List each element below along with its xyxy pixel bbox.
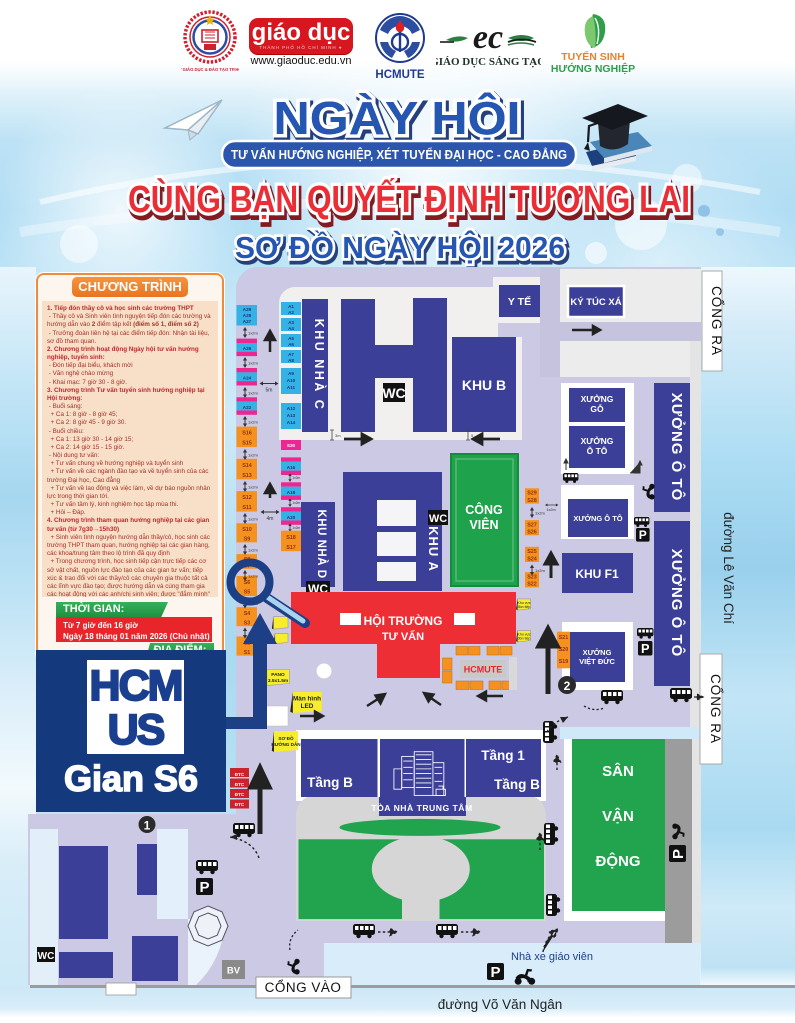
svg-text:PANO: PANO bbox=[271, 672, 285, 678]
svg-text:Tầng B: Tầng B bbox=[494, 777, 540, 792]
svg-text:LED: LED bbox=[301, 703, 314, 710]
svg-text:S1: S1 bbox=[244, 650, 251, 656]
svg-text:S16: S16 bbox=[242, 431, 252, 437]
svg-text:S17: S17 bbox=[286, 545, 296, 551]
svg-text:TƯ VẤN: TƯ VẤN bbox=[382, 630, 424, 643]
svg-text:A10: A10 bbox=[287, 378, 296, 383]
svg-text:S4: S4 bbox=[244, 611, 251, 617]
svg-text:S15: S15 bbox=[242, 441, 252, 447]
svg-text:A8: A8 bbox=[288, 358, 294, 363]
svg-text:WC: WC bbox=[38, 951, 55, 962]
svg-text:3.5x1.5m: 3.5x1.5m bbox=[268, 678, 288, 684]
svg-text:A27: A27 bbox=[243, 319, 252, 324]
svg-text:1: 1 bbox=[144, 819, 151, 833]
svg-text:1x2m: 1x2m bbox=[546, 508, 555, 512]
svg-text:KHU NHÀ D: KHU NHÀ D bbox=[315, 509, 328, 578]
svg-text:S21: S21 bbox=[559, 635, 569, 641]
svg-text:A26: A26 bbox=[243, 346, 252, 351]
svg-text:A14: A14 bbox=[287, 420, 296, 425]
svg-text:P: P bbox=[670, 849, 687, 859]
svg-text:A1: A1 bbox=[288, 304, 294, 309]
svg-text:A28: A28 bbox=[243, 313, 252, 318]
svg-text:A18: A18 bbox=[287, 490, 296, 495]
svg-text:S28: S28 bbox=[527, 498, 537, 504]
svg-text:XƯỞNG: XƯỞNG bbox=[583, 648, 612, 657]
svg-text:Tầng 1: Tầng 1 bbox=[481, 748, 525, 763]
svg-text:HƯỚNG DẪN: HƯỚNG DẪN bbox=[271, 740, 301, 747]
svg-text:CỔNG RA: CỔNG RA bbox=[709, 286, 724, 356]
svg-text:A6: A6 bbox=[288, 342, 294, 347]
svg-text:SÂN: SÂN bbox=[602, 762, 634, 780]
svg-text:S26: S26 bbox=[527, 530, 537, 536]
svg-text:KÝ TÚC XÁ: KÝ TÚC XÁ bbox=[570, 296, 621, 308]
svg-text:A16: A16 bbox=[287, 465, 296, 470]
svg-text:S22: S22 bbox=[527, 582, 537, 588]
svg-text:KHU A: KHU A bbox=[426, 526, 441, 572]
svg-text:WC: WC bbox=[382, 385, 405, 401]
svg-text:SƠ ĐỒ: SƠ ĐỒ bbox=[278, 735, 294, 741]
svg-text:Nhà xe giáo viên: Nhà xe giáo viên bbox=[511, 951, 593, 963]
svg-text:S14: S14 bbox=[242, 463, 252, 469]
svg-text:XƯỞNG Ô TÔ: XƯỞNG Ô TÔ bbox=[668, 549, 686, 658]
svg-text:Màn hình: Màn hình bbox=[293, 696, 321, 703]
svg-text:Tầng B: Tầng B bbox=[307, 775, 353, 790]
svg-text:A24: A24 bbox=[243, 376, 252, 381]
svg-text:4m: 4m bbox=[267, 516, 274, 522]
svg-text:BV: BV bbox=[227, 966, 241, 977]
svg-text:A11: A11 bbox=[287, 385, 296, 390]
svg-text:S18: S18 bbox=[286, 535, 296, 541]
svg-text:đường Võ Văn Ngân: đường Võ Văn Ngân bbox=[438, 997, 562, 1012]
svg-text:A22: A22 bbox=[243, 405, 252, 410]
svg-text:S19: S19 bbox=[559, 659, 569, 665]
svg-text:A7: A7 bbox=[288, 352, 294, 357]
svg-text:đón tiếp: đón tiếp bbox=[518, 605, 531, 609]
svg-text:S11: S11 bbox=[242, 505, 251, 511]
svg-text:XƯỞNG: XƯỞNG bbox=[581, 435, 614, 446]
svg-text:KHU F1: KHU F1 bbox=[575, 567, 619, 581]
svg-text:5m: 5m bbox=[266, 388, 273, 394]
svg-text:A5: A5 bbox=[288, 336, 294, 341]
svg-text:GỖ: GỖ bbox=[590, 403, 604, 414]
svg-text:S10: S10 bbox=[242, 527, 252, 533]
svg-text:ĐỘNG: ĐỘNG bbox=[596, 852, 641, 870]
svg-text:3m: 3m bbox=[335, 433, 341, 438]
svg-text:CÔNG: CÔNG bbox=[465, 502, 503, 517]
svg-text:S25: S25 bbox=[527, 549, 537, 555]
svg-text:S12: S12 bbox=[242, 495, 252, 501]
svg-text:ĐTC: ĐTC bbox=[235, 802, 245, 807]
svg-text:ĐTC: ĐTC bbox=[235, 772, 245, 777]
svg-text:KHU B: KHU B bbox=[462, 377, 506, 393]
svg-text:A3: A3 bbox=[288, 320, 294, 325]
svg-text:A13: A13 bbox=[287, 413, 296, 418]
svg-text:VIÊN: VIÊN bbox=[469, 517, 498, 532]
svg-text:A9: A9 bbox=[288, 371, 294, 376]
svg-text:XƯỞNG Ô TÔ: XƯỞNG Ô TÔ bbox=[668, 393, 686, 502]
svg-text:S27: S27 bbox=[527, 522, 537, 528]
svg-text:ĐTC: ĐTC bbox=[235, 792, 245, 797]
svg-text:XƯỞNG: XƯỞNG bbox=[581, 393, 614, 404]
svg-text:đường Lê Văn Chí: đường Lê Văn Chí bbox=[721, 512, 736, 624]
svg-text:VẬN: VẬN bbox=[602, 807, 634, 825]
svg-text:S3: S3 bbox=[244, 621, 251, 627]
svg-text:S13: S13 bbox=[242, 473, 252, 479]
svg-text:KHU NHÀ C: KHU NHÀ C bbox=[312, 319, 327, 412]
svg-text:S24: S24 bbox=[527, 556, 537, 562]
svg-text:ĐTC: ĐTC bbox=[235, 782, 245, 787]
svg-text:HỘI TRƯỜNG: HỘI TRƯỜNG bbox=[364, 613, 443, 628]
svg-text:VIỆT ĐỨC: VIỆT ĐỨC bbox=[579, 657, 615, 666]
svg-text:đón tiếp: đón tiếp bbox=[518, 637, 531, 641]
svg-text:A20: A20 bbox=[287, 515, 296, 520]
svg-text:Ô TÔ: Ô TÔ bbox=[587, 445, 608, 456]
svg-text:Y TẾ: Y TẾ bbox=[508, 295, 531, 308]
svg-text:CỔNG VÀO: CỔNG VÀO bbox=[265, 980, 342, 995]
svg-text:A2: A2 bbox=[288, 310, 294, 315]
svg-text:2: 2 bbox=[564, 679, 571, 693]
svg-text:S5: S5 bbox=[244, 590, 251, 596]
svg-text:CỔNG RA: CỔNG RA bbox=[708, 674, 723, 744]
svg-text:A29: A29 bbox=[243, 307, 252, 312]
svg-text:S9: S9 bbox=[244, 537, 251, 543]
svg-text:TÒA NHÀ TRUNG TÂM: TÒA NHÀ TRUNG TÂM bbox=[371, 802, 472, 813]
svg-text:XƯỞNG Ô TÔ: XƯỞNG Ô TÔ bbox=[573, 514, 622, 523]
svg-text:WC: WC bbox=[429, 513, 447, 525]
svg-text:HCMUTE: HCMUTE bbox=[464, 665, 503, 675]
svg-text:A4: A4 bbox=[288, 326, 294, 331]
svg-text:S6: S6 bbox=[244, 580, 251, 586]
svg-text:A12: A12 bbox=[287, 406, 296, 411]
svg-text:S30: S30 bbox=[287, 443, 296, 448]
svg-text:S29: S29 bbox=[527, 491, 537, 497]
